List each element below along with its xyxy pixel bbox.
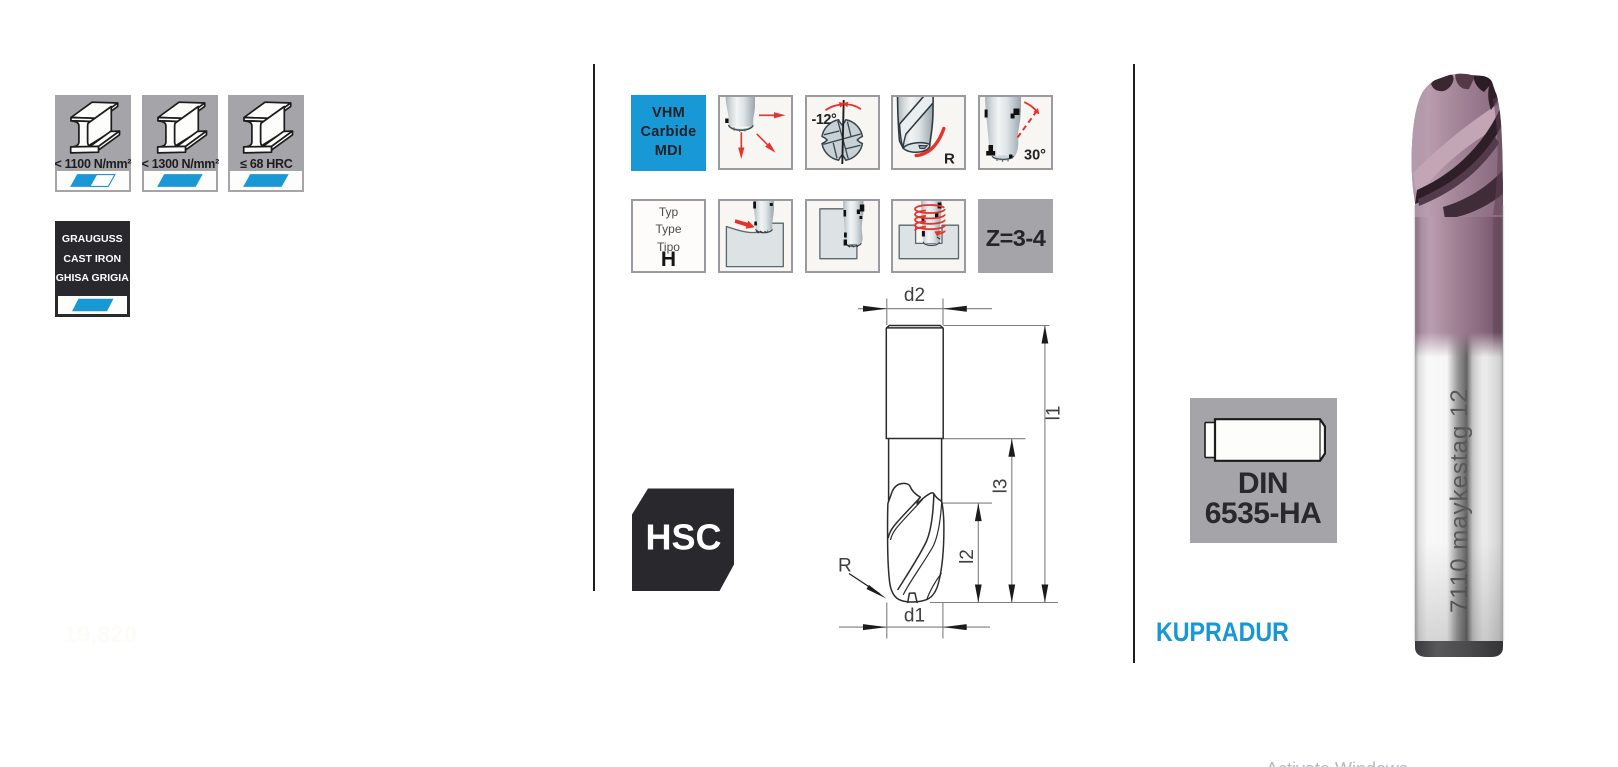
svg-text:d1: d1 (904, 606, 925, 627)
svg-text:HSC: HSC (645, 517, 721, 558)
svg-text:l1: l1 (1044, 406, 1065, 421)
svg-text:l3: l3 (991, 479, 1012, 494)
svg-text:30°: 30° (1024, 148, 1046, 164)
svg-text:l2: l2 (957, 549, 978, 564)
svg-text:d2: d2 (904, 285, 925, 306)
svg-text:-12°: -12° (811, 112, 836, 128)
svg-text:R: R (944, 151, 955, 168)
svg-text:R: R (838, 556, 852, 577)
